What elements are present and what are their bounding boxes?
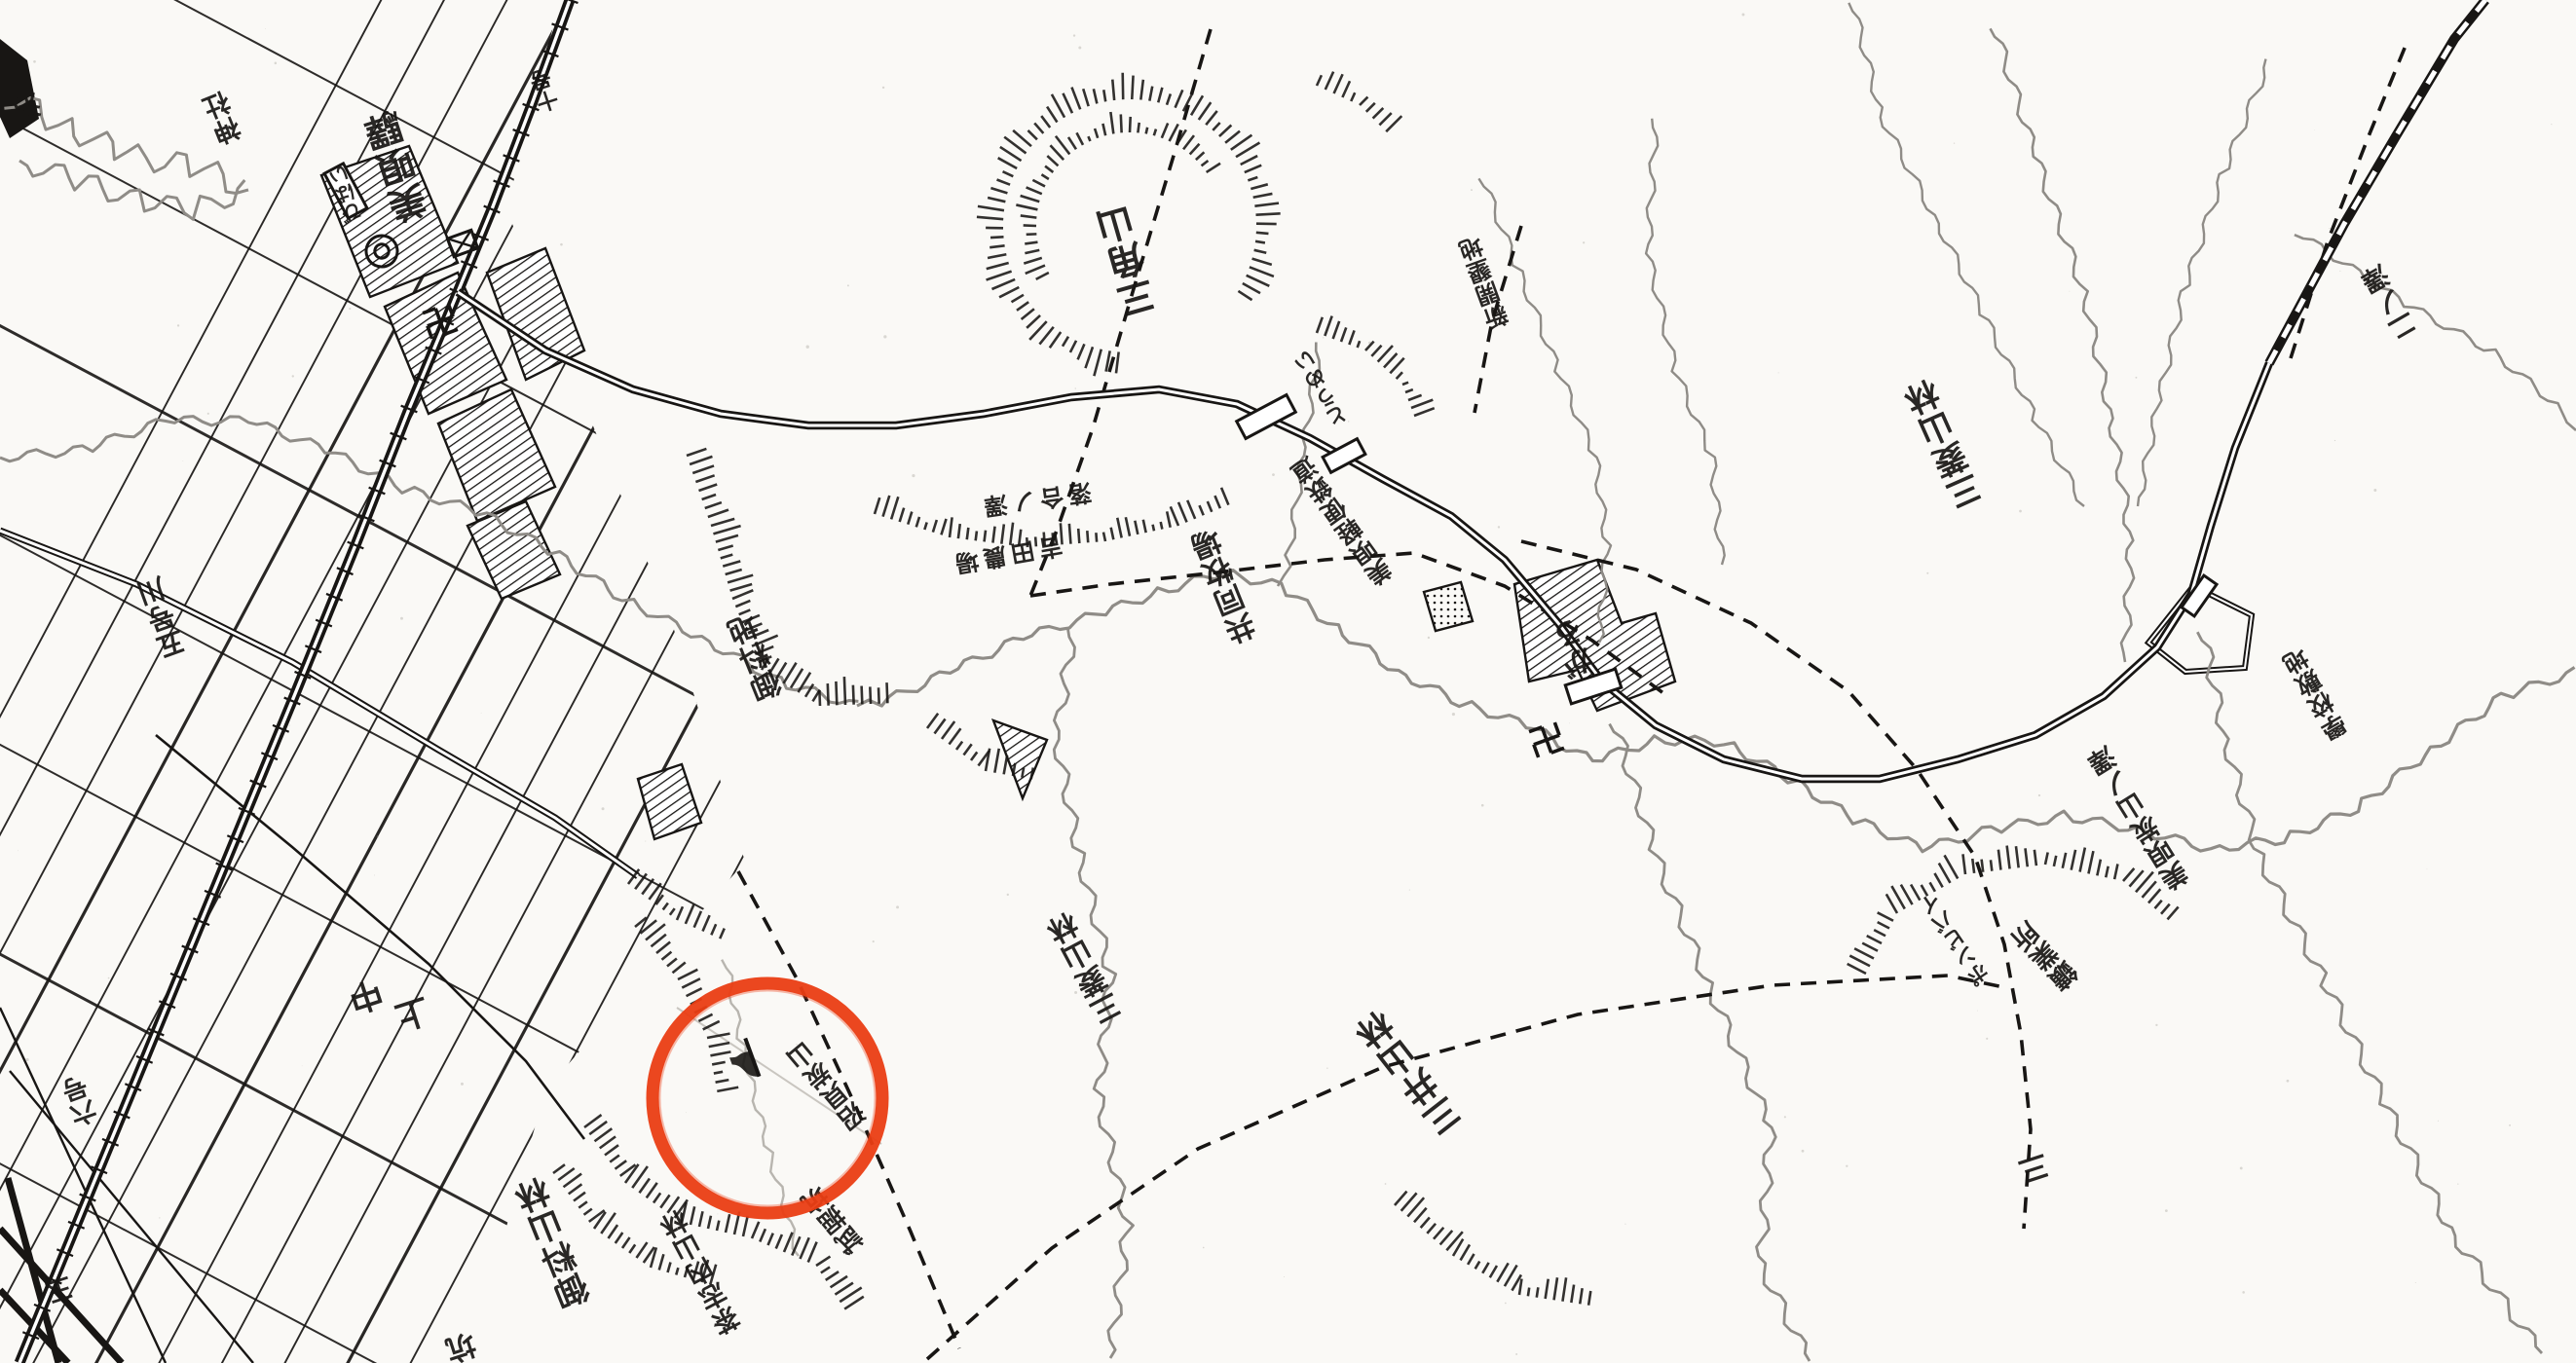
svg-text:神社: 神社 xyxy=(199,85,244,148)
grid-label-naka: 中 xyxy=(344,972,388,1019)
svg-text:美唄軽便鉄道: 美唄軽便鉄道 xyxy=(1285,451,1396,591)
svg-text:三菱山林: 三菱山林 xyxy=(1041,905,1126,1030)
svg-text:五号川: 五号川 xyxy=(132,571,189,663)
shrine-label: 神社 xyxy=(199,85,244,148)
railway-name: 美唄軽便鉄道 xyxy=(1285,451,1396,591)
forest-mitsubishi-center: 三菱山林 xyxy=(1041,905,1126,1030)
svg-text:三井山林: 三井山林 xyxy=(1348,1003,1468,1142)
grid-label-rokugo: 六号 xyxy=(57,1069,100,1129)
station-kana-tomei: とうめい xyxy=(1289,345,1351,430)
svg-text:落合ノ澤: 落合ノ澤 xyxy=(978,478,1094,521)
svg-text:中: 中 xyxy=(344,972,388,1019)
river-kana-ponbibai: ポンビバイ xyxy=(1915,888,1993,989)
station-tomei-building xyxy=(1237,395,1296,439)
svg-text:二ノ澤: 二ノ澤 xyxy=(2356,258,2421,345)
svg-text:御料山林: 御料山林 xyxy=(509,1169,594,1314)
historical-map: 美唄驛びばい神社沼五号川中上六号玉十号三角山新開墾地とうめい美唄軽便鉄道共同牧場… xyxy=(0,0,2576,1363)
lone-san: 三 xyxy=(2014,1147,2052,1189)
grid-label-kami: 上 xyxy=(391,989,434,1037)
forest-mitsubishi-east: 三菱山林 xyxy=(1898,371,1986,514)
forest-mitsui: 三井山林 xyxy=(1348,1003,1468,1142)
pasture-label: 共同牧場 xyxy=(1185,522,1260,649)
sawa-ochiai: 落合ノ澤 xyxy=(978,478,1094,521)
grid-label-gogo: 五号川 xyxy=(132,571,189,663)
svg-text:三角山: 三角山 xyxy=(1091,198,1159,323)
sawa-nino: 二ノ澤 xyxy=(2356,258,2421,345)
svg-text:鑛業所: 鑛業所 xyxy=(2004,915,2083,995)
pit-label: 坑 xyxy=(441,1326,479,1363)
forest-goryo: 御料山林 xyxy=(509,1169,594,1314)
mountain-sankakuyama: 三角山 xyxy=(1091,198,1159,323)
goryochi-label: 御料地 xyxy=(722,607,785,706)
mine-flag-symbol xyxy=(726,1038,760,1084)
svg-text:三: 三 xyxy=(2014,1147,2052,1189)
map-canvas: 美唄驛びばい神社沼五号川中上六号玉十号三角山新開墾地とうめい美唄軽便鉄道共同牧場… xyxy=(0,0,2576,1363)
school-grounds-label: 學校敷地 xyxy=(2277,643,2351,746)
svg-text:とうめい: とうめい xyxy=(1289,345,1351,430)
svg-text:學校敷地: 學校敷地 xyxy=(2277,643,2351,746)
svg-text:坑: 坑 xyxy=(441,1326,479,1363)
mining-office-label: 鑛業所 xyxy=(2004,915,2083,995)
svg-text:御料地: 御料地 xyxy=(722,607,785,706)
svg-text:上: 上 xyxy=(391,989,434,1037)
svg-text:六号: 六号 xyxy=(57,1069,100,1129)
svg-text:共同牧場: 共同牧場 xyxy=(1185,522,1260,649)
svg-text:三菱山林: 三菱山林 xyxy=(1898,371,1986,514)
svg-text:ポンビバイ: ポンビバイ xyxy=(1915,888,1993,989)
